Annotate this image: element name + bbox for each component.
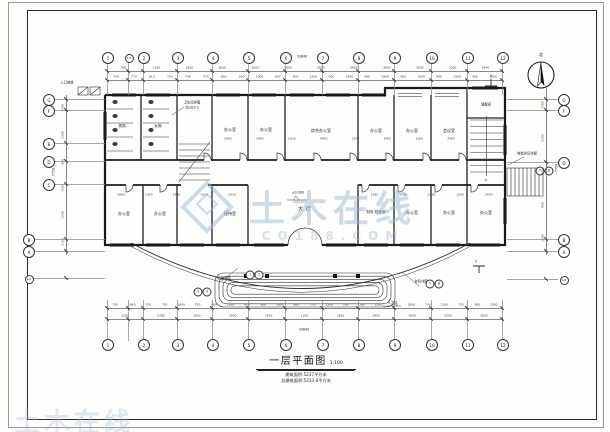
canopy-arc-inner: [131, 243, 470, 292]
stair-left: [179, 142, 210, 182]
north-label: 北: [539, 52, 543, 58]
north-arrow-icon: [528, 62, 554, 88]
drawing-scale: 1:100: [330, 361, 343, 367]
area-note-2: 总建筑面积:5233.6平方米: [256, 378, 356, 384]
door-arcs-bottom-rooms: [126, 185, 478, 192]
elevation-symbol: [287, 196, 307, 200]
entrance-steps: [215, 273, 395, 307]
door-arcs-top-rooms: [204, 153, 466, 160]
stair-right: [470, 116, 503, 176]
windows: [104, 87, 507, 247]
canopy-arc: [131, 243, 470, 289]
title-block: 一层平面图 1:100 建筑面积:5237平方米 总建筑面积:5233.6平方米: [256, 352, 356, 384]
entrance-double-door: [288, 228, 322, 245]
drawing-title: 一层平面图: [269, 352, 327, 367]
side-steps: [507, 168, 543, 196]
partition-walls: [141, 88, 505, 245]
drawing-sheet: 土木在线 CO188.COM 土木在线: [0, 0, 610, 432]
exterior-walls: [105, 88, 505, 245]
entry-ramps: [78, 87, 100, 95]
